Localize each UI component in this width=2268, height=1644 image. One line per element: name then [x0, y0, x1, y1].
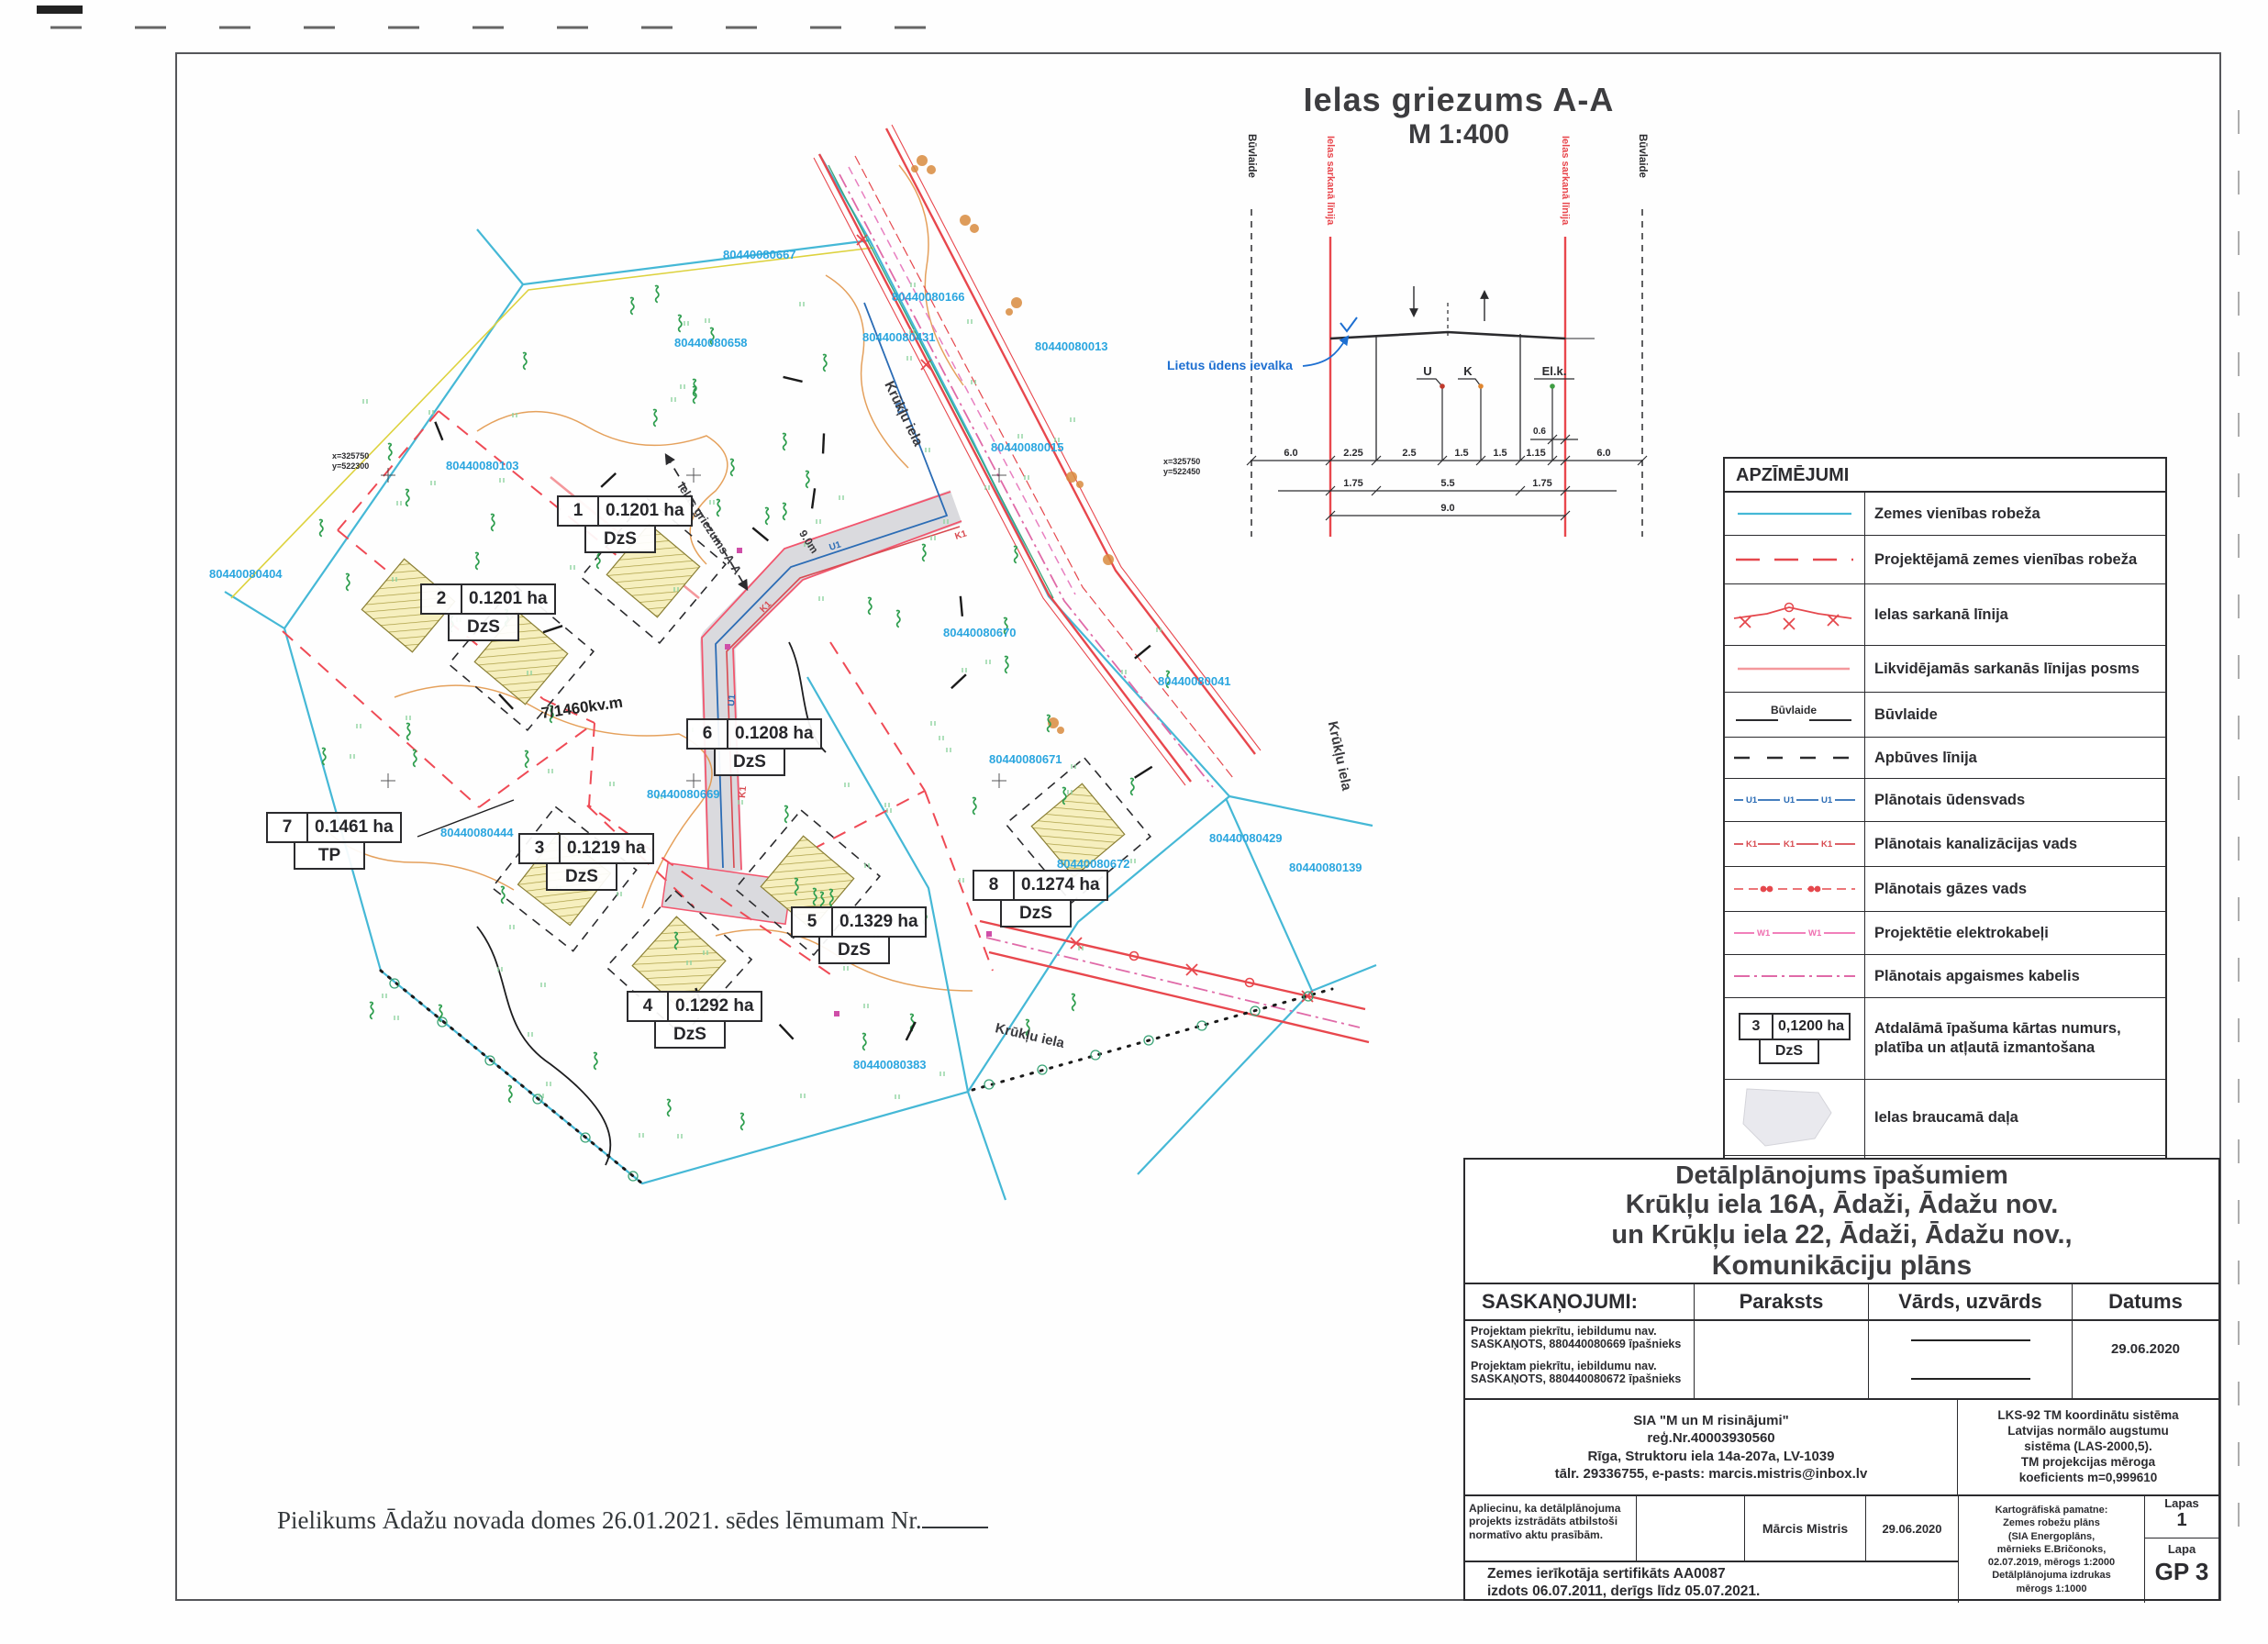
tree-mark: [765, 508, 769, 525]
grass-mark: [383, 994, 386, 998]
plan-sheet: U1U1U1K1K1K1 Ielas sarkanā līnija Ielas …: [0, 0, 2268, 1644]
tree-mark: [413, 750, 417, 767]
legend-symbol-cell: Būvlaide: [1725, 693, 1865, 737]
grass-mark: [681, 384, 684, 389]
grass-mark: [1025, 475, 1028, 480]
svg-text:1.15: 1.15: [1526, 448, 1545, 459]
parcel-label-3: 30.1219 haDzS: [518, 833, 654, 891]
spot-mark: [435, 422, 442, 440]
grass-mark: [947, 748, 951, 752]
aux-yellow-line: [231, 248, 873, 598]
parcel-label-row: 80.1274 ha: [973, 870, 1108, 901]
tree-mark: [1130, 779, 1134, 795]
legend-item-label: Plānotais ūdensvads: [1865, 779, 2165, 821]
council-decision-text: Pielikums Ādažu novada domes 26.01.2021.…: [277, 1506, 922, 1534]
author-name: Mārcis Mistris: [1745, 1496, 1866, 1561]
svg-text:y=522450: y=522450: [1163, 467, 1200, 476]
legend-item-cyan-line: Zemes vienības robeža: [1725, 493, 2165, 536]
approvals-header-col4: Datums: [2073, 1284, 2218, 1319]
parcel-number: 8: [973, 870, 1015, 901]
cadastral-number: 80440080667: [723, 248, 796, 261]
tree-mark: [730, 460, 734, 476]
spot-mark: [780, 1025, 794, 1039]
parcel-usage: TP: [294, 843, 365, 870]
title-line-1: Detālplānojums īpašumiem: [1675, 1161, 2008, 1190]
parcel-area: 0.1274 ha: [1015, 870, 1108, 901]
grass-mark: [547, 1082, 550, 1086]
approvals-header-col3: Vārds, uzvārds: [1869, 1284, 2073, 1319]
tree-mark: [370, 1003, 373, 1019]
grass-mark: [363, 399, 367, 404]
statement-cell: Apliecinu, ka detālplānojumaprojekts izs…: [1465, 1496, 1637, 1561]
tree-mark: [322, 749, 326, 765]
legend-item-apgaismes: Plānotais apgaismes kabelis: [1725, 955, 2165, 998]
cadastral-number: 80440080670: [943, 626, 1017, 639]
basemap-line: Zemes robežu plāns: [2003, 1516, 2100, 1529]
red-x-symbol: [1730, 598, 1859, 631]
grass-mark: [610, 782, 614, 786]
legend: APZĪMĒJUMI Zemes vienības robežaProjektē…: [1723, 457, 2167, 1242]
grass-mark: [431, 481, 435, 485]
svg-text:Būvlaide: Būvlaide: [1771, 704, 1817, 716]
shrub-circles: [390, 979, 1313, 1181]
legend-item-gas: Plānotais gāzes vads: [1725, 867, 2165, 912]
parcel-label-7: 70.1461 haTP: [266, 812, 402, 870]
pink-line-symbol: [1730, 652, 1859, 685]
cross-section-scale: M 1:400: [1220, 119, 1697, 150]
legend-parcel-box: 30,1200 haDzS: [1739, 1013, 1851, 1064]
title-line-4: Komunikāciju plāns: [1712, 1250, 1972, 1282]
certificate-line-2: izdots 06.07.2011, derīgs līdz 05.07.202…: [1487, 1583, 1866, 1600]
tree-mark: [630, 298, 634, 315]
svg-text:El.k.: El.k.: [1542, 364, 1567, 378]
parcel-label-8: 80.1274 haDzS: [973, 870, 1108, 928]
parcel-label-1: 10.1201 haDzS: [557, 495, 693, 553]
parcel-label-row: 20.1201 ha: [420, 583, 556, 615]
signature-line: [1911, 1339, 2030, 1341]
tree-mark: [678, 316, 682, 332]
grass-mark: [672, 397, 675, 402]
blank-line: [922, 1506, 988, 1528]
approval-date-cell: 29.06.2020: [2073, 1321, 2218, 1398]
approval-texts: Projektam piekrītu, iebildumu nav. SASKA…: [1465, 1321, 1695, 1398]
basemap-line: Kartogrāfiskā pamatne:: [1996, 1504, 2108, 1516]
tree-mark: [406, 490, 409, 506]
grass-mark: [962, 668, 966, 672]
legend-item-label: Zemes vienības robeža: [1865, 493, 2165, 535]
parcel-label-row: 30.1219 ha: [518, 833, 654, 864]
legend-symbol-cell: 30,1200 haDzS: [1725, 998, 1865, 1079]
author-date: 29.06.2020: [1866, 1496, 1959, 1561]
tree-mark: [655, 286, 659, 303]
title-block-bottom: Apliecinu, ka detālplānojumaprojekts izs…: [1465, 1494, 2218, 1603]
elektro-symbol: W1W1: [1730, 916, 1859, 950]
legend-item-label: Plānotais kanalizācijas vads: [1865, 822, 2165, 866]
title-line-3: un Krūkļu iela 22, Ādaži, Ādažu nov.,: [1611, 1220, 2072, 1250]
coordinate-system-line: Latvijas normālo augstumu: [2007, 1424, 2169, 1439]
cadastral-number: 80440080013: [1035, 339, 1108, 353]
legend-symbol-cell: [1725, 867, 1865, 911]
basemap-line: mērnieks E.Bričonoks,: [1997, 1543, 2107, 1556]
grass-mark: [357, 724, 361, 728]
legend-symbol-cell: [1725, 1080, 1865, 1155]
legend-symbol-cell: [1725, 955, 1865, 997]
basemap-line: (SIA Energoplāns,: [2008, 1530, 2095, 1543]
coordinate-system-line: TM projekcijas mēroga: [2021, 1455, 2155, 1471]
tree-mark: [491, 515, 495, 531]
svg-text:K1: K1: [1821, 839, 1833, 850]
svg-text:K1: K1: [1784, 839, 1795, 850]
parcel-area: 0.1329 ha: [833, 906, 927, 938]
bottom-paraksts-cell: [1637, 1496, 1745, 1561]
grass-mark: [931, 721, 935, 726]
svg-text:1.75: 1.75: [1532, 478, 1551, 489]
statement-line: projekts izstrādāts atbilstoši: [1469, 1515, 1636, 1527]
grass-mark: [706, 318, 709, 323]
parcel-label-row: 10.1201 ha: [557, 495, 693, 527]
grass-mark: [839, 495, 843, 500]
company-info-line: Rīga, Struktoru iela 14a-207a, LV-1039: [1587, 1448, 1834, 1466]
coordinate-system-line: LKS-92 TM koordinātu sistēma: [1997, 1408, 2178, 1424]
water-line-tag: U1: [727, 694, 738, 706]
statement-line: Apliecinu, ka detālplānojuma: [1469, 1502, 1636, 1515]
grass-mark: [960, 878, 963, 883]
tree-mark: [388, 444, 392, 461]
road-part-symbol: [1730, 1082, 1859, 1153]
svg-text:0.6: 0.6: [1533, 427, 1546, 437]
basemap-cell: Kartogrāfiskā pamatne:Zemes robežu plāns…: [1959, 1496, 2145, 1603]
parcel-label-6: 60.1208 haDzS: [686, 718, 822, 776]
parcel-area: 0.1201 ha: [599, 495, 693, 527]
grass-mark: [844, 966, 848, 971]
grass-mark: [986, 660, 990, 664]
spot-mark: [906, 1022, 916, 1040]
grass-mark: [911, 283, 915, 287]
grass-mark: [985, 485, 989, 490]
approval-2-line-1: Projektam piekrītu, iebildumu nav.: [1471, 1360, 1694, 1372]
spot-mark: [812, 488, 815, 508]
legend-symbol-cell: [1725, 493, 1865, 535]
map-coordinate-label: x=325750 y=522300: [332, 451, 369, 472]
red-line-verticals: [1330, 237, 1565, 537]
parcel-usage: DzS: [654, 1022, 726, 1049]
cadastral-number: 80440080041: [1158, 674, 1231, 688]
parcel-label-5: 50.1329 haDzS: [791, 906, 927, 964]
approval-paraksts-cell: [1695, 1321, 1869, 1398]
parcel-label-row: 40.1292 ha: [627, 991, 762, 1022]
map-coord-x: x=325750: [332, 451, 369, 461]
approvals-header: SASKAŅOJUMI: Paraksts Vārds, uzvārds Dat…: [1465, 1283, 2218, 1319]
sewer-line-tag: K1: [738, 785, 749, 798]
cadastral-number: 80440080671: [989, 752, 1062, 766]
buvlaide-symbol: Būvlaide: [1730, 698, 1859, 731]
legend-symbol-cell: [1725, 738, 1865, 778]
legend-item-road-part: Ielas braucamā daļa: [1725, 1080, 2165, 1156]
signature-line: [1911, 1378, 2030, 1380]
dotted-boundary: [381, 971, 1332, 1183]
svg-text:K: K: [1463, 364, 1473, 378]
parcel-area: 0.1292 ha: [669, 991, 762, 1022]
approval-1-line-2: SASKAŅOTS, 880440080669 īpašnieks: [1471, 1338, 1694, 1350]
tree-mark: [1005, 657, 1008, 673]
tree-mark: [475, 553, 479, 570]
sheet-number-cell: Lapa GP 3: [2145, 1538, 2218, 1603]
approval-1-line-1: Projektam piekrītu, iebildumu nav.: [1471, 1325, 1694, 1338]
svg-text:1.5: 1.5: [1454, 448, 1468, 459]
grass-mark: [406, 716, 410, 720]
spot-mark: [1135, 767, 1152, 778]
svg-text:W1: W1: [1808, 928, 1822, 939]
grass-mark: [1122, 670, 1126, 674]
legend-item-label: Atdalāmā īpašuma kārtas numurs, platība …: [1865, 998, 2165, 1079]
tree-mark: [717, 500, 720, 517]
tree-mark: [862, 1034, 866, 1050]
grass-mark: [510, 925, 514, 929]
parcel-usage: DzS: [818, 938, 890, 964]
section-utilities: U K El.k.: [1417, 364, 1574, 461]
tree-mark: [501, 887, 505, 904]
grass-mark: [639, 1133, 643, 1138]
legend-item-buvlaide: BūvlaideBūvlaide: [1725, 693, 2165, 738]
cadastral-number: 80440080658: [674, 336, 748, 350]
grass-mark: [1131, 859, 1135, 863]
spot-mark: [951, 674, 966, 688]
svg-text:1.75: 1.75: [1343, 478, 1362, 489]
legend-item-red-x: Ielas sarkanā līnija: [1725, 584, 2165, 646]
legend-symbol-cell: [1725, 536, 1865, 583]
svg-text:U1: U1: [1784, 795, 1795, 805]
gas-symbol: [1730, 872, 1859, 905]
tree-mark: [525, 751, 528, 768]
parcel-usage: DzS: [1000, 901, 1072, 928]
cross-section-title-text: Ielas griezums A-A: [1220, 81, 1697, 119]
parcel-number: 4: [627, 991, 669, 1022]
sheet-count-value: 1: [2145, 1510, 2218, 1531]
grass-mark: [845, 783, 849, 787]
svg-text:W1: W1: [1757, 928, 1771, 939]
spot-mark: [784, 377, 803, 382]
drawing-title: Detālplānojums īpašumiem Krūkļu iela 16A…: [1465, 1160, 2218, 1283]
grass-mark: [940, 1072, 944, 1076]
apgaismes-symbol: [1730, 960, 1859, 993]
legend-item-black-dash: Apbūves līnija: [1725, 738, 2165, 779]
grass-mark: [500, 478, 504, 483]
spot-mark: [601, 473, 616, 487]
tree-mark: [783, 434, 786, 450]
grass-mark: [684, 321, 688, 326]
map-coord-y: y=522300: [332, 461, 369, 472]
section-coordinates: x=325750 y=522450: [1163, 457, 1200, 476]
legend-symbol-cell: K1K1K1: [1725, 822, 1865, 866]
street-cross-section: Ielas sarkanā līnija Ielas sarkanā līnij…: [1163, 134, 1648, 537]
grass-mark: [350, 754, 354, 759]
legend-symbol-cell: [1725, 584, 1865, 645]
cadastral-number: 80440080383: [853, 1058, 927, 1072]
tree-mark: [1072, 994, 1075, 1011]
company-row: SIA "M un M risinājumi"reģ.Nr.4000393056…: [1465, 1398, 2218, 1494]
grass-mark: [1071, 417, 1074, 422]
parcel-label-row: 50.1329 ha: [791, 906, 927, 938]
basemap-line: Detālplānojuma izdrukas: [1992, 1569, 2111, 1582]
svg-text:2.5: 2.5: [1402, 448, 1416, 459]
legend-item-label: Ielas sarkanā līnija: [1865, 584, 2165, 645]
legend-item-u1: U1U1U1Plānotais ūdensvads: [1725, 779, 2165, 822]
cadastral-number: 80440080672: [1057, 857, 1130, 871]
parcel-number: 6: [686, 718, 728, 750]
sheet-number-value: GP 3: [2145, 1558, 2218, 1586]
grass-mark: [429, 410, 433, 415]
legend-symbol-cell: U1U1U1: [1725, 779, 1865, 821]
legend-parcel-usage: DzS: [1759, 1040, 1819, 1064]
grass-mark: [885, 803, 889, 807]
grass-mark: [926, 448, 929, 452]
parcel-usage: DzS: [546, 864, 617, 891]
parcel-area: 0.1208 ha: [728, 718, 822, 750]
sheet-number-label: Lapa: [2145, 1542, 2218, 1556]
legend-item-label: Projektējamā zemes vienības robeža: [1865, 536, 2165, 583]
tree-mark: [523, 353, 527, 370]
coordinate-system-line: koeficients m=0,999610: [2019, 1471, 2157, 1486]
statement-line: normatīvo aktu prasībām.: [1469, 1528, 1636, 1541]
approvals-rows: Projektam piekrītu, iebildumu nav. SASKA…: [1465, 1319, 2218, 1398]
svg-text:6.0: 6.0: [1284, 448, 1297, 459]
legend-item-elektro: W1W1Projektētie elektrokabeļi: [1725, 912, 2165, 955]
cadastral-number: 80440080103: [446, 459, 519, 472]
grass-mark: [710, 500, 714, 505]
svg-text:K1: K1: [1746, 839, 1758, 850]
grass-mark: [549, 769, 552, 773]
grass-mark: [819, 596, 823, 601]
legend-item-k1: K1K1K1Plānotais kanalizācijas vads: [1725, 822, 2165, 867]
u1-symbol: U1U1U1: [1730, 783, 1859, 816]
sheet-count-cell: Lapas 1: [2145, 1496, 2218, 1538]
grass-mark: [931, 536, 935, 540]
svg-text:6.0: 6.0: [1596, 448, 1610, 459]
grass-mark: [498, 967, 502, 972]
k1-symbol: K1K1K1: [1730, 828, 1859, 861]
parcel-usage: DzS: [584, 527, 656, 553]
certificate-line-1: Zemes ierīkotāja sertifikāts AA0087: [1487, 1565, 1866, 1583]
svg-text:U: U: [1423, 364, 1431, 378]
cyan-line-symbol: [1730, 497, 1859, 530]
grass-mark: [895, 1094, 899, 1099]
spot-mark: [752, 528, 768, 540]
grass-mark: [617, 892, 621, 896]
tree-mark: [973, 798, 976, 815]
tree-mark: [922, 545, 926, 561]
approval-2-line-2: SASKAŅOTS, 880440080672 īpašnieks: [1471, 1372, 1694, 1385]
company-info-line: tālr. 29336755, e-pasts: marcis.mistris@…: [1555, 1465, 1868, 1483]
legend-rows: Zemes vienības robežaProjektējamā zemes …: [1725, 493, 2165, 1240]
grass-mark: [801, 1094, 805, 1098]
legend-parcel-area: 0,1200 ha: [1773, 1013, 1851, 1040]
grass-mark: [739, 800, 742, 805]
red-dash-symbol: [1730, 543, 1859, 576]
grass-mark: [1018, 434, 1022, 439]
parcel-area: 0.1219 ha: [561, 833, 654, 864]
legend-item-label: Plānotais apgaismes kabelis: [1865, 955, 2165, 997]
parcel-area: 0.1461 ha: [308, 812, 402, 843]
legend-item-label: Būvlaide: [1865, 693, 2165, 737]
legend-item-label: Apbūves līnija: [1865, 738, 2165, 778]
grass-mark: [968, 319, 972, 324]
legend-item-label: Likvidējamās sarkanās līnijas posms: [1865, 646, 2165, 692]
tree-mark: [667, 1100, 671, 1116]
parcel-label-4: 40.1292 haDzS: [627, 991, 762, 1049]
rain-inlet-annotation: Lietus ūdens ievalka: [1167, 317, 1357, 372]
cadastral-number: 80440080404: [209, 567, 283, 581]
black-dash-symbol: [1730, 741, 1859, 774]
dimension-rows: 6.0 2.25 2.5 1.5 1.5 1.15 6.0 0.6 1.75 5…: [1247, 427, 1647, 520]
spot-mark: [823, 433, 824, 453]
grass-mark: [907, 356, 911, 361]
tree-mark: [784, 806, 788, 823]
svg-text:U1: U1: [1821, 795, 1833, 805]
parcel-number: 1: [557, 495, 599, 527]
cadastral-number: 80440080669: [647, 787, 720, 801]
cadastral-map: U1U1U1K1K1K1: [225, 125, 1376, 1200]
title-block: Detālplānojums īpašumiem Krūkļu iela 16A…: [1463, 1158, 2220, 1601]
legend-symbol-cell: [1725, 646, 1865, 692]
tree-mark: [406, 724, 410, 740]
parcel-number: 7: [266, 812, 308, 843]
coordinate-system-line: sistēma (LAS-2000,5).: [2024, 1439, 2152, 1455]
svg-text:U1: U1: [1746, 795, 1758, 805]
grass-mark: [864, 1004, 868, 1008]
tree-mark: [806, 472, 809, 488]
parcel-area: 0.1201 ha: [462, 583, 556, 615]
approval-signature-cell: [1869, 1321, 2073, 1398]
approvals-header-col2: Paraksts: [1695, 1284, 1869, 1319]
title-line-2: Krūkļu iela 16A, Ādaži, Ādažu nov.: [1626, 1190, 2059, 1220]
grass-mark: [939, 736, 943, 740]
tree-mark: [823, 355, 827, 372]
svg-text:5.5: 5.5: [1440, 478, 1454, 489]
svg-text:x=325750: x=325750: [1163, 457, 1200, 466]
grass-mark: [541, 983, 545, 987]
tree-mark: [740, 1114, 744, 1130]
parcel-label-row: 60.1208 ha: [686, 718, 822, 750]
cadastral-number: 80440080166: [892, 290, 965, 304]
approvals-header-col1: SASKAŅOJUMI:: [1465, 1284, 1695, 1319]
grass-mark: [887, 808, 891, 813]
legend-item-red-dash: Projektējamā zemes vienības robeža: [1725, 536, 2165, 584]
tree-mark: [783, 504, 786, 520]
tree-mark: [1014, 547, 1017, 563]
legend-parcel-row: 30,1200 ha: [1739, 1013, 1851, 1040]
certificate-blank-cell: [1866, 1561, 1959, 1603]
legend-item-pink-line: Likvidējamās sarkanās līnijas posms: [1725, 646, 2165, 693]
cadastral-number: 80440080431: [862, 330, 936, 344]
grass-mark: [817, 519, 820, 524]
spot-mark: [1135, 646, 1151, 659]
legend-item-label: Ielas braucamā daļa: [1865, 1080, 2165, 1155]
council-decision-note: Pielikums Ādažu novada domes 26.01.2021.…: [277, 1506, 988, 1535]
grass-mark: [397, 501, 401, 505]
legend-item-label: Plānotais gāzes vads: [1865, 867, 2165, 911]
basemap-line: 02.07.2019, mērogs 1:2000: [1988, 1556, 2115, 1569]
tree-mark: [896, 611, 900, 628]
cadastral-number: 80440080139: [1289, 861, 1362, 874]
tree-mark: [653, 410, 657, 427]
company-info: SIA "M un M risinājumi"reģ.Nr.4000393056…: [1465, 1400, 1958, 1494]
parcel-label-row: 70.1461 ha: [266, 812, 402, 843]
parcel-usage: DzS: [714, 750, 785, 776]
grass-mark: [395, 1016, 398, 1020]
sheet-count-label: Lapas: [2145, 1496, 2218, 1510]
company-info-line: reģ.Nr.40003930560: [1647, 1429, 1774, 1448]
coordinate-system-info: LKS-92 TM koordinātu sistēmaLatvijas nor…: [1958, 1400, 2218, 1494]
